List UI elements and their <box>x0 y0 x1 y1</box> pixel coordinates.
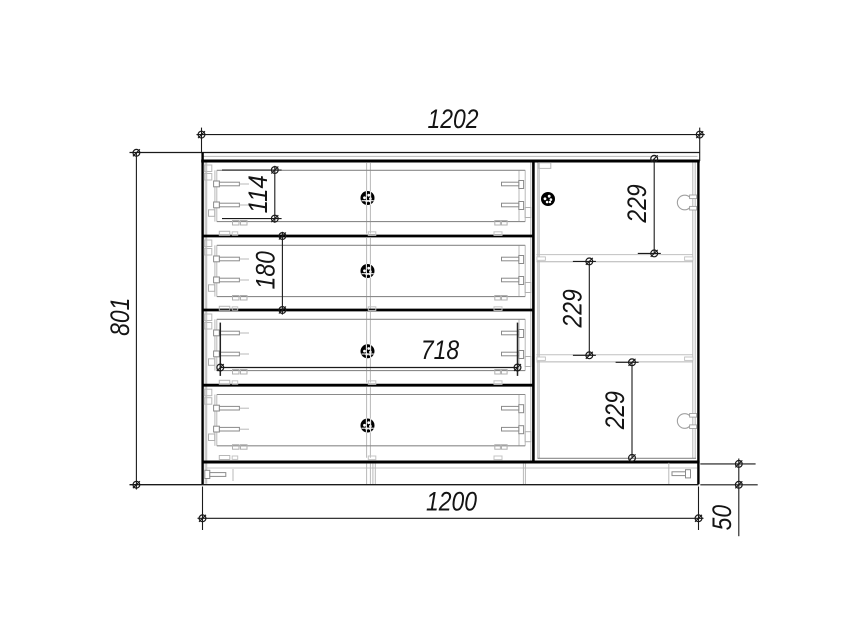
svg-text:801: 801 <box>105 298 135 336</box>
svg-text:1202: 1202 <box>428 104 479 134</box>
svg-text:718: 718 <box>421 335 459 365</box>
svg-text:229: 229 <box>600 391 630 430</box>
svg-text:114: 114 <box>243 175 273 213</box>
svg-text:50: 50 <box>707 505 737 531</box>
svg-text:229: 229 <box>622 184 652 223</box>
svg-text:229: 229 <box>557 289 587 328</box>
svg-text:180: 180 <box>250 251 280 289</box>
svg-text:1200: 1200 <box>426 487 477 517</box>
